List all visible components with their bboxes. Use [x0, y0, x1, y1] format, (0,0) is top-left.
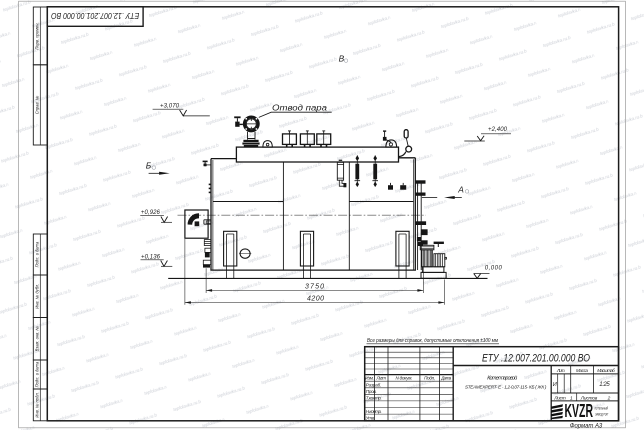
- svg-text:Подп.: Подп.: [424, 376, 435, 381]
- svg-text:Инв. № дубл.: Инв. № дубл.: [35, 284, 40, 309]
- svg-text:Перв. примен.: Перв. примен.: [35, 22, 40, 49]
- svg-text:+2,400: +2,400: [488, 127, 508, 133]
- svg-text:Подп. и дата: Подп. и дата: [35, 241, 40, 267]
- svg-text:Пров.: Пров.: [366, 389, 377, 394]
- svg-text:Формат А3: Формат А3: [570, 423, 603, 429]
- svg-text:KVZR: KVZR: [565, 401, 594, 421]
- svg-text:Отвод пара: Отвод пара: [272, 102, 327, 112]
- svg-text:ЗАВОД РЭП: ЗАВОД РЭП: [595, 413, 608, 417]
- svg-text:2: 2: [607, 395, 611, 401]
- svg-text:+0,136: +0,136: [141, 254, 161, 260]
- svg-text:ЕТУ .12.007.201.00.000 ВО: ЕТУ .12.007.201.00.000 ВО: [51, 11, 139, 21]
- svg-text:Лит.: Лит.: [556, 368, 565, 373]
- svg-text:3750: 3750: [305, 284, 324, 291]
- svg-text:Т.контр.: Т.контр.: [366, 395, 382, 400]
- svg-text:Взам. инв. №: Взам. инв. №: [35, 325, 40, 351]
- svg-text:1:25: 1:25: [599, 382, 610, 388]
- svg-text:КОТЕЛЬНЫЙ: КОТЕЛЬНЫЙ: [595, 406, 609, 410]
- svg-text:Масштаб: Масштаб: [597, 368, 615, 373]
- svg-text:N докум.: N докум.: [396, 376, 413, 381]
- svg-text:Разраб.: Разраб.: [366, 382, 382, 387]
- svg-text:Б: Б: [146, 161, 152, 171]
- svg-text:Котел паровой: Котел паровой: [487, 374, 517, 381]
- svg-text:ЕТУ .12.007.201.00.000 ВО: ЕТУ .12.007.201.00.000 ВО: [482, 353, 590, 365]
- svg-text:Все размеры для справок, допус: Все размеры для справок, допустимые откл…: [367, 338, 498, 344]
- svg-text:0,000: 0,000: [485, 265, 503, 271]
- svg-text:Подп. и дата: Подп. и дата: [35, 361, 40, 387]
- svg-text:STEAMEXPERT- Е - 1,2-0,07-115-: STEAMEXPERT- Е - 1,2-0,07-115- КБ ( ЖК ): [465, 385, 547, 390]
- svg-text:И: И: [553, 382, 557, 388]
- svg-text:А: А: [457, 185, 464, 195]
- svg-text:Справ. №: Справ. №: [35, 95, 40, 114]
- svg-text:+3,070: +3,070: [160, 104, 180, 110]
- svg-text:Изм.: Изм.: [365, 376, 374, 381]
- svg-text:Н.контр.: Н.контр.: [366, 409, 382, 414]
- svg-text:Дата: Дата: [440, 376, 451, 381]
- svg-text:Инв. № подл.: Инв. № подл.: [35, 392, 40, 417]
- svg-text:Утв.: Утв.: [366, 415, 375, 420]
- svg-text:Лист: Лист: [375, 376, 386, 381]
- svg-text:+0,926: +0,926: [141, 210, 161, 216]
- svg-text:4200: 4200: [307, 296, 324, 303]
- svg-text:В: В: [339, 54, 345, 64]
- svg-text:Масса: Масса: [576, 368, 588, 373]
